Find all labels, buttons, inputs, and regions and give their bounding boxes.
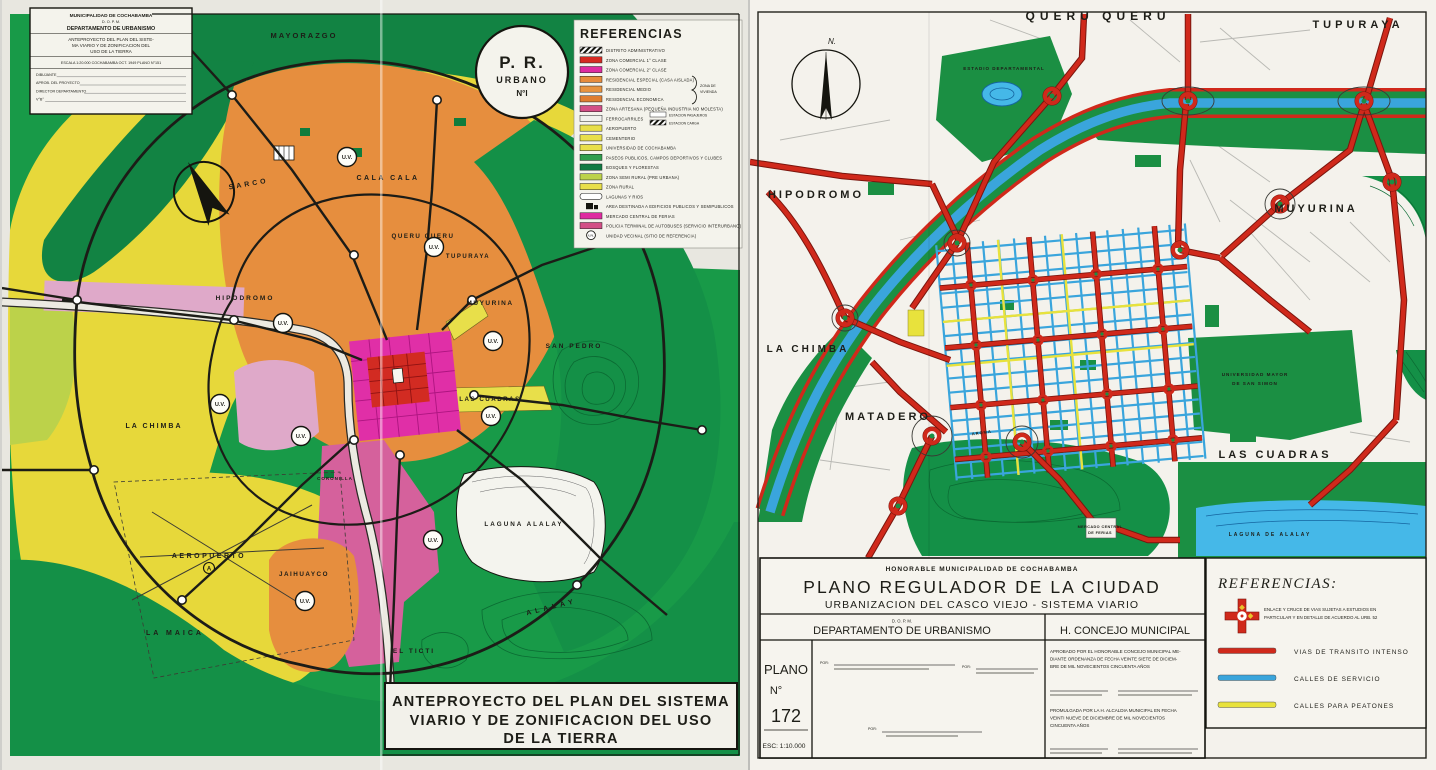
svg-text:U.V.: U.V. — [215, 402, 226, 408]
info-subject-3: USO DE LA TIERRA — [90, 49, 131, 54]
tb-subtitle: URBANIZACION DEL CASCO VIEJO - SISTEMA V… — [825, 599, 1139, 611]
left-map-sheet: A MAYORAZGOSARCOCALA CALAQUERU QUERU — [2, 0, 748, 770]
map-title-1: ANTEPROYECTO DEL PLAN DEL SISTEMA — [392, 694, 730, 710]
map-label: LAGUNA ALALAY — [484, 521, 563, 528]
svg-text:ZONA ARTESANA (PEQUEÑA INDUSTR: ZONA ARTESANA (PEQUEÑA INDUSTRIA NO MOLE… — [606, 107, 723, 112]
laguna-de-alalay — [1196, 500, 1426, 556]
svg-text:CALLES PARA PEATONES: CALLES PARA PEATONES — [1294, 703, 1394, 710]
tb-dept-abbr: D. O. P. M. — [892, 619, 912, 624]
fold-crease — [928, 12, 930, 558]
airport-marker: A — [207, 567, 212, 573]
uv-marker: U.V. — [274, 314, 293, 333]
legend-row: ZONA RURAL — [580, 184, 635, 190]
stadium — [982, 82, 1022, 106]
map-label: MERCADO CENTRAL — [1078, 525, 1123, 529]
svg-text:CALLES DE SERVICIO: CALLES DE SERVICIO — [1294, 676, 1381, 683]
cross-note-1: ENLACE Y CRUCE DE VIAS SUJETAS A ESTUDIO… — [1264, 607, 1376, 612]
svg-text:FERROCARRILES: FERROCARRILES — [606, 116, 643, 121]
svg-text:U.V.: U.V. — [488, 339, 499, 345]
sig-label-1: POR: — [820, 661, 829, 665]
legend-box: REFERENCIAS: ENLACE Y CRUCE DE VIAS SUJE… — [1206, 558, 1426, 728]
info-dept-abbr: D. O. P. M. — [102, 20, 120, 24]
bracket-label-1: ZONA DE — [700, 84, 716, 88]
city-core — [349, 331, 461, 441]
map-label: LA MAICA — [146, 630, 204, 637]
uv-marker: U.V. — [296, 592, 315, 611]
svg-text:PASEOS PUBLICOS, CAMPOS DEPORT: PASEOS PUBLICOS, CAMPOS DEPORTIVOS Y CLU… — [606, 155, 722, 160]
tb-promulgated-2: VEINTI NUEVE DE DICIEMBRE DE MIL NOVECIE… — [1050, 716, 1165, 721]
svg-text:RESIDENCIAL ECONOMICA: RESIDENCIAL ECONOMICA — [606, 97, 664, 102]
map-label: CORONILLA — [317, 476, 353, 481]
svg-text:APROB. DEL PROYECTO: APROB. DEL PROYECTO — [36, 81, 80, 85]
svg-text:ZONA SEMI RURAL (PRE URBANA): ZONA SEMI RURAL (PRE URBANA) — [606, 175, 680, 180]
map-label: UNIVERSIDAD MAYOR — [1222, 372, 1289, 377]
map-label: EL TICTI — [393, 648, 435, 655]
svg-text:RESIDENCIAL ESPECIAL (CASA AIS: RESIDENCIAL ESPECIAL (CASA AISLADA) — [606, 77, 695, 82]
svg-text:RESIDENCIAL MEDIO: RESIDENCIAL MEDIO — [606, 87, 651, 92]
svg-text:BOSQUES Y FLORESTAS: BOSQUES Y FLORESTAS — [606, 165, 659, 170]
svg-text:DIBUJANTE: DIBUJANTE — [36, 73, 57, 77]
svg-text:U.V.: U.V. — [428, 538, 439, 544]
legend-row: ZONA COMERCIAL 1° CLASE — [580, 57, 667, 63]
tb-approved-2: DIANTE ORDENANZA DE FECHA VEINTE SIETE D… — [1050, 657, 1178, 662]
legend-row: AREA DESTINADA A EDIFICIOS PUBLICOS Y SE… — [586, 203, 734, 209]
svg-text:U.V.: U.V. — [300, 599, 311, 605]
fold-crease — [380, 0, 383, 770]
legend-box: REFERENCIAS DISTRITO ADMINISTRATIVOZONA … — [574, 20, 742, 248]
tb-council: H. CONCEJO MUNICIPAL — [1060, 625, 1190, 637]
svg-text:U.V.: U.V. — [486, 414, 497, 420]
info-subject-1: ANTEPROYECTO DEL PLAN DEL SISTE- — [68, 37, 154, 42]
legend-row: UNIVERSIDAD DE COCHABAMBA — [580, 145, 676, 151]
legend-sub-1: ESTACION PASAJEROS — [669, 114, 708, 118]
legend-row: ZONA ARTESANA (PEQUEÑA INDUSTRIA NO MOLE… — [580, 106, 723, 112]
legend-row: RESIDENCIAL ESPECIAL (CASA AISLADA) — [580, 76, 695, 82]
right-map-sheet: N. QUERU QUERUTUPURAYAHIPODROMOLA CHIMBA… — [750, 0, 1436, 770]
svg-text:U.V.: U.V. — [278, 321, 289, 327]
info-muni: MUNICIPALIDAD DE COCHABAMBA — [70, 13, 153, 19]
svg-text:POLICIA TERMINAL DE AUTOBUSES: POLICIA TERMINAL DE AUTOBUSES (SERVICIO … — [606, 224, 742, 229]
legend-row: ZONA SEMI RURAL (PRE URBANA) — [580, 174, 680, 180]
bracket-label-2: VIVIENDA — [700, 90, 717, 94]
svg-text:LAGUNAS Y RIOS: LAGUNAS Y RIOS — [606, 194, 643, 199]
stamp-line2: URBANO — [496, 75, 548, 85]
svg-text:U.V.: U.V. — [342, 155, 353, 161]
svg-text:DISTRITO ADMINISTRATIVO: DISTRITO ADMINISTRATIVO — [606, 48, 665, 53]
legend-row: ZONA COMERCIAL 2° CLASE — [580, 67, 667, 73]
map-label: JAIHUAYCO — [279, 571, 329, 578]
svg-text:UNIDAD VECINAL (SITIO DE REFER: UNIDAD VECINAL (SITIO DE REFERENCIA) — [606, 233, 697, 238]
uv-marker: U.V. — [338, 148, 357, 167]
legend-sub-2: ESTACION CARGA — [669, 122, 700, 126]
legend-row: DISTRITO ADMINISTRATIVO — [580, 47, 665, 53]
tb-num-sign: N° — [770, 685, 782, 697]
map-label: MUYURINA — [466, 300, 513, 307]
legend-row: RESIDENCIAL MEDIO — [580, 86, 651, 92]
tb-title: PLANO REGULADOR DE LA CIUDAD — [803, 577, 1160, 597]
svg-text:AREA DESTINADA A EDIFICIOS PUB: AREA DESTINADA A EDIFICIOS PUBLICOS Y SE… — [606, 204, 734, 209]
legend-row: FERROCARRILES — [580, 115, 643, 121]
svg-text:VIAS DE TRANSITO INTENSO: VIAS DE TRANSITO INTENSO — [1294, 649, 1409, 656]
cross-note-2: PARTICULAR Y EN DETALLE DE ACUERDO AL UR… — [1264, 615, 1378, 620]
uv-marker: U.V. — [482, 407, 501, 426]
uv-marker: U.V. — [425, 238, 444, 257]
map-label: MAYORAZGO — [271, 31, 338, 40]
map-label: LA CHIMBA — [125, 423, 182, 430]
svg-text:UNIVERSIDAD DE COCHABAMBA: UNIVERSIDAD DE COCHABAMBA — [606, 146, 676, 151]
legend-row: PASEOS PUBLICOS, CAMPOS DEPORTIVOS Y CLU… — [580, 154, 722, 160]
tb-approved-1: APROBADO POR EL HONORABLE CONCEJO MUNICI… — [1050, 649, 1181, 654]
map-label: MUYURINA — [1274, 203, 1357, 215]
legend-row: LAGUNAS Y RIOS — [580, 193, 643, 199]
legend-row: RESIDENCIAL ECONOMICA — [580, 96, 664, 102]
map-label: TUPURAYA — [1312, 19, 1403, 31]
tb-plano-word: PLANO — [764, 662, 808, 677]
map-label: MATADERO — [845, 411, 931, 423]
legend-title: REFERENCIAS: — [1217, 576, 1338, 592]
tb-dept: DEPARTAMENTO DE URBANISMO — [813, 625, 991, 637]
map-label: LA CHIMBA — [767, 344, 850, 355]
svg-text:U.V.: U.V. — [429, 245, 440, 251]
svg-text:ZONA RURAL: ZONA RURAL — [606, 185, 635, 190]
map-title-2: VIARIO Y DE ZONIFICACION DEL USO — [410, 713, 713, 729]
sig-label-3: POR: — [868, 727, 877, 731]
uv-marker: U.V. — [211, 395, 230, 414]
info-box: MUNICIPALIDAD DE COCHABAMBA D. O. P. M. … — [30, 8, 192, 114]
svg-text:U.V.: U.V. — [588, 234, 594, 238]
tb-scale: ESC: 1:10.000 — [763, 743, 806, 750]
tb-approved-3: BRE DE MIL NOVECIENTOS CINCUENTA AÑOS — [1050, 663, 1150, 669]
legend-row: MERCADO CENTRAL DE FERIAS — [580, 213, 675, 219]
title-block: HONORABLE MUNICIPALIDAD DE COCHABAMBA PL… — [760, 558, 1205, 758]
uv-marker: U.V. — [484, 332, 503, 351]
photo-of-two-plans: A MAYORAZGOSARCOCALA CALAQUERU QUERU — [0, 0, 1436, 770]
map-title-3: DE LA TIERRA — [503, 731, 618, 747]
uv-marker: U.V. — [424, 531, 443, 550]
map-label: LAS CUADRAS — [459, 396, 521, 403]
svg-text:AEROPUERTO: AEROPUERTO — [606, 126, 637, 131]
map-label: HIPODROMO — [768, 189, 864, 201]
map-label: ESTADIO DEPARTAMENTAL — [963, 66, 1044, 71]
map-label: QUERU QUERU — [1025, 9, 1170, 23]
tb-muni: HONORABLE MUNICIPALIDAD DE COCHABAMBA — [886, 566, 1079, 573]
map-label: HIPODROMO — [216, 295, 275, 302]
svg-text:ZONA COMERCIAL 2° CLASE: ZONA COMERCIAL 2° CLASE — [606, 68, 667, 73]
svg-text:V°B°: V°B° — [36, 98, 44, 102]
map-label: DE SAN SIMON — [1232, 381, 1278, 386]
pr-stamp: P. R. URBANO N°I — [476, 26, 568, 118]
map-label: QUERU QUERU — [392, 233, 455, 240]
legend-row: BOSQUES Y FLORESTAS — [580, 164, 659, 170]
legend-row: CEMENTERIO — [580, 135, 635, 141]
north-label: N. — [828, 37, 836, 46]
tb-promulgated-1: PROMULGADA POR LA H. ALCALDIA MUNICIPAL … — [1050, 708, 1177, 713]
map-label: DE FERIAS — [1088, 531, 1112, 535]
map-label: LAS CUADRAS — [1218, 449, 1331, 461]
info-dept: DEPARTAMENTO DE URBANISMO — [67, 26, 155, 32]
stamp-line3: N°I — [516, 89, 527, 98]
info-scale: ESCALA 1:20.000 COCHABAMBA OCT. 1949 PLA… — [61, 61, 161, 65]
svg-text:DIRECTOR DEPARTAMENTO: DIRECTOR DEPARTAMENTO — [36, 89, 86, 93]
map-label: CALA CALA — [356, 175, 419, 182]
sig-label-2: POR: — [962, 665, 971, 669]
cathedral-block-icon — [392, 368, 403, 383]
map-label: AEROPUERTO — [172, 553, 246, 560]
info-subject-2: MA VIARIO Y DE ZONIFICACION DEL — [72, 43, 151, 48]
map-label: TUPURAYA — [446, 254, 490, 260]
legend-title: REFERENCIAS — [580, 27, 683, 41]
title-box: ANTEPROYECTO DEL PLAN DEL SISTEMA VIARIO… — [385, 683, 737, 749]
uv-marker: U.V. — [292, 427, 311, 446]
svg-text:CEMENTERIO: CEMENTERIO — [606, 136, 635, 141]
map-label: SAN PEDRO — [546, 343, 603, 350]
map-label: LAGUNA DE ALALAY — [1229, 532, 1312, 538]
stamp-line1: P. R. — [499, 53, 545, 72]
tb-plano-num: 172 — [771, 706, 801, 726]
svg-text:U.V.: U.V. — [296, 434, 307, 440]
svg-text:ZONA COMERCIAL 1° CLASE: ZONA COMERCIAL 1° CLASE — [606, 58, 667, 63]
svg-text:MERCADO CENTRAL DE FERIAS: MERCADO CENTRAL DE FERIAS — [606, 214, 675, 219]
tb-promulgated-3: CINCUENTA AÑOS — [1050, 722, 1089, 728]
legend-row: AEROPUERTO — [580, 125, 637, 131]
